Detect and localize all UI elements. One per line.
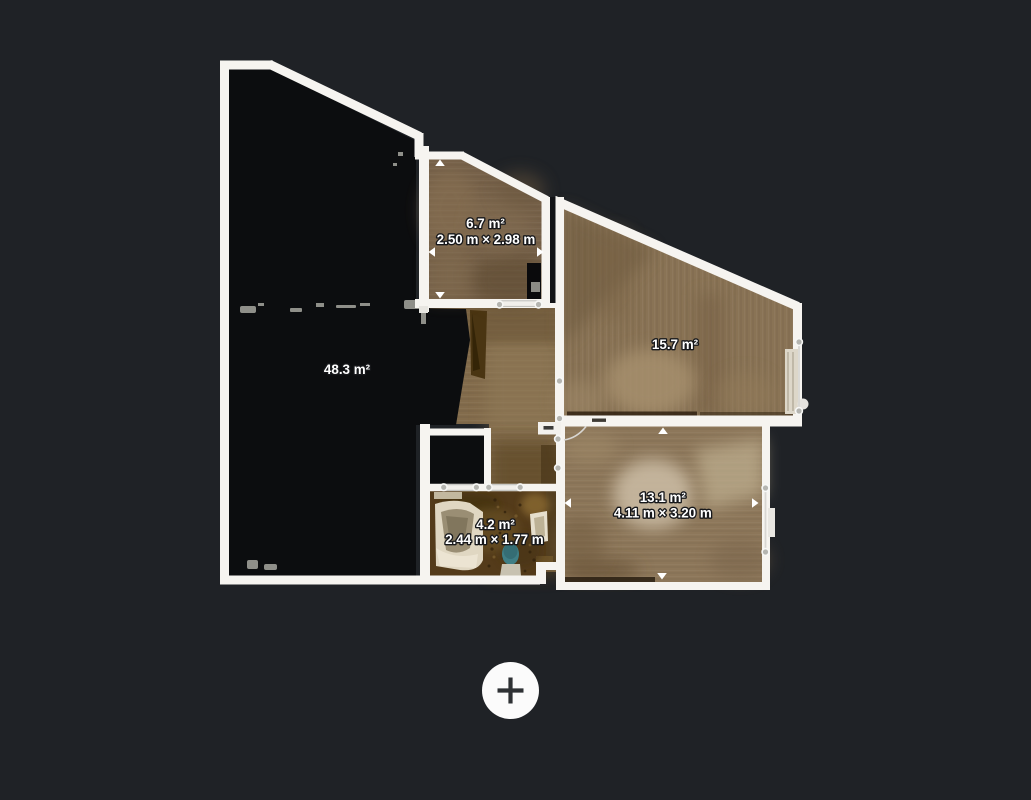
svg-text:48.3 m²: 48.3 m² [324, 362, 371, 377]
svg-text:4.11 m × 3.20 m: 4.11 m × 3.20 m [614, 506, 712, 521]
svg-text:2.50 m × 2.98 m: 2.50 m × 2.98 m [437, 232, 536, 247]
svg-text:13.1 m²: 13.1 m² [640, 490, 687, 505]
svg-text:15.7 m²: 15.7 m² [652, 337, 699, 352]
svg-text:2.44 m × 1.77 m: 2.44 m × 1.77 m [445, 532, 544, 547]
svg-text:4.2 m²: 4.2 m² [476, 517, 515, 532]
svg-text:6.7 m²: 6.7 m² [466, 216, 505, 231]
